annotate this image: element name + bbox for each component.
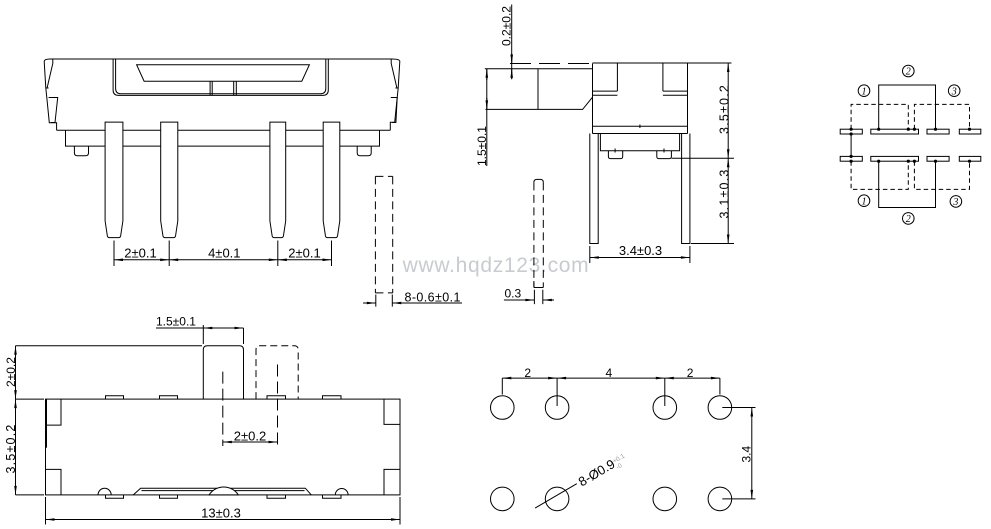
svg-text:1: 1 (862, 86, 867, 97)
svg-text:2±0.1: 2±0.1 (288, 245, 320, 260)
svg-text:3.5±0.2: 3.5±0.2 (718, 84, 732, 134)
svg-text:2: 2 (906, 214, 911, 225)
svg-text:3.1±0.3: 3.1±0.3 (718, 168, 732, 218)
svg-text:3.4±0.3: 3.4±0.3 (619, 243, 662, 258)
svg-text:4±0.1: 4±0.1 (208, 245, 240, 260)
svg-text:8-Ø0.9: 8-Ø0.9 (576, 456, 618, 489)
svg-text:8-0.6±0.1: 8-0.6±0.1 (405, 290, 461, 304)
svg-text:3.5±0.2: 3.5±0.2 (4, 423, 18, 473)
svg-text:2±0.2: 2±0.2 (4, 357, 18, 387)
svg-text:1.5±0.1: 1.5±0.1 (475, 126, 489, 166)
svg-text:13±0.3: 13±0.3 (201, 506, 241, 521)
svg-text:2±0.1: 2±0.1 (124, 245, 156, 260)
svg-text:1: 1 (862, 196, 867, 207)
svg-text:2: 2 (687, 366, 694, 380)
svg-text:0.2±0.2: 0.2±0.2 (500, 6, 514, 46)
svg-text:2±0.2: 2±0.2 (234, 429, 266, 444)
svg-text:2: 2 (524, 366, 531, 380)
svg-text:1.5±0.1: 1.5±0.1 (156, 315, 196, 329)
svg-text:www.hqdz123.com: www.hqdz123.com (402, 254, 590, 277)
svg-text:3: 3 (951, 86, 957, 97)
svg-text:3.4: 3.4 (740, 445, 754, 462)
svg-text:3: 3 (952, 197, 958, 208)
svg-text:0.3: 0.3 (505, 287, 522, 301)
svg-text:2: 2 (906, 67, 911, 78)
svg-text:4: 4 (606, 366, 613, 380)
